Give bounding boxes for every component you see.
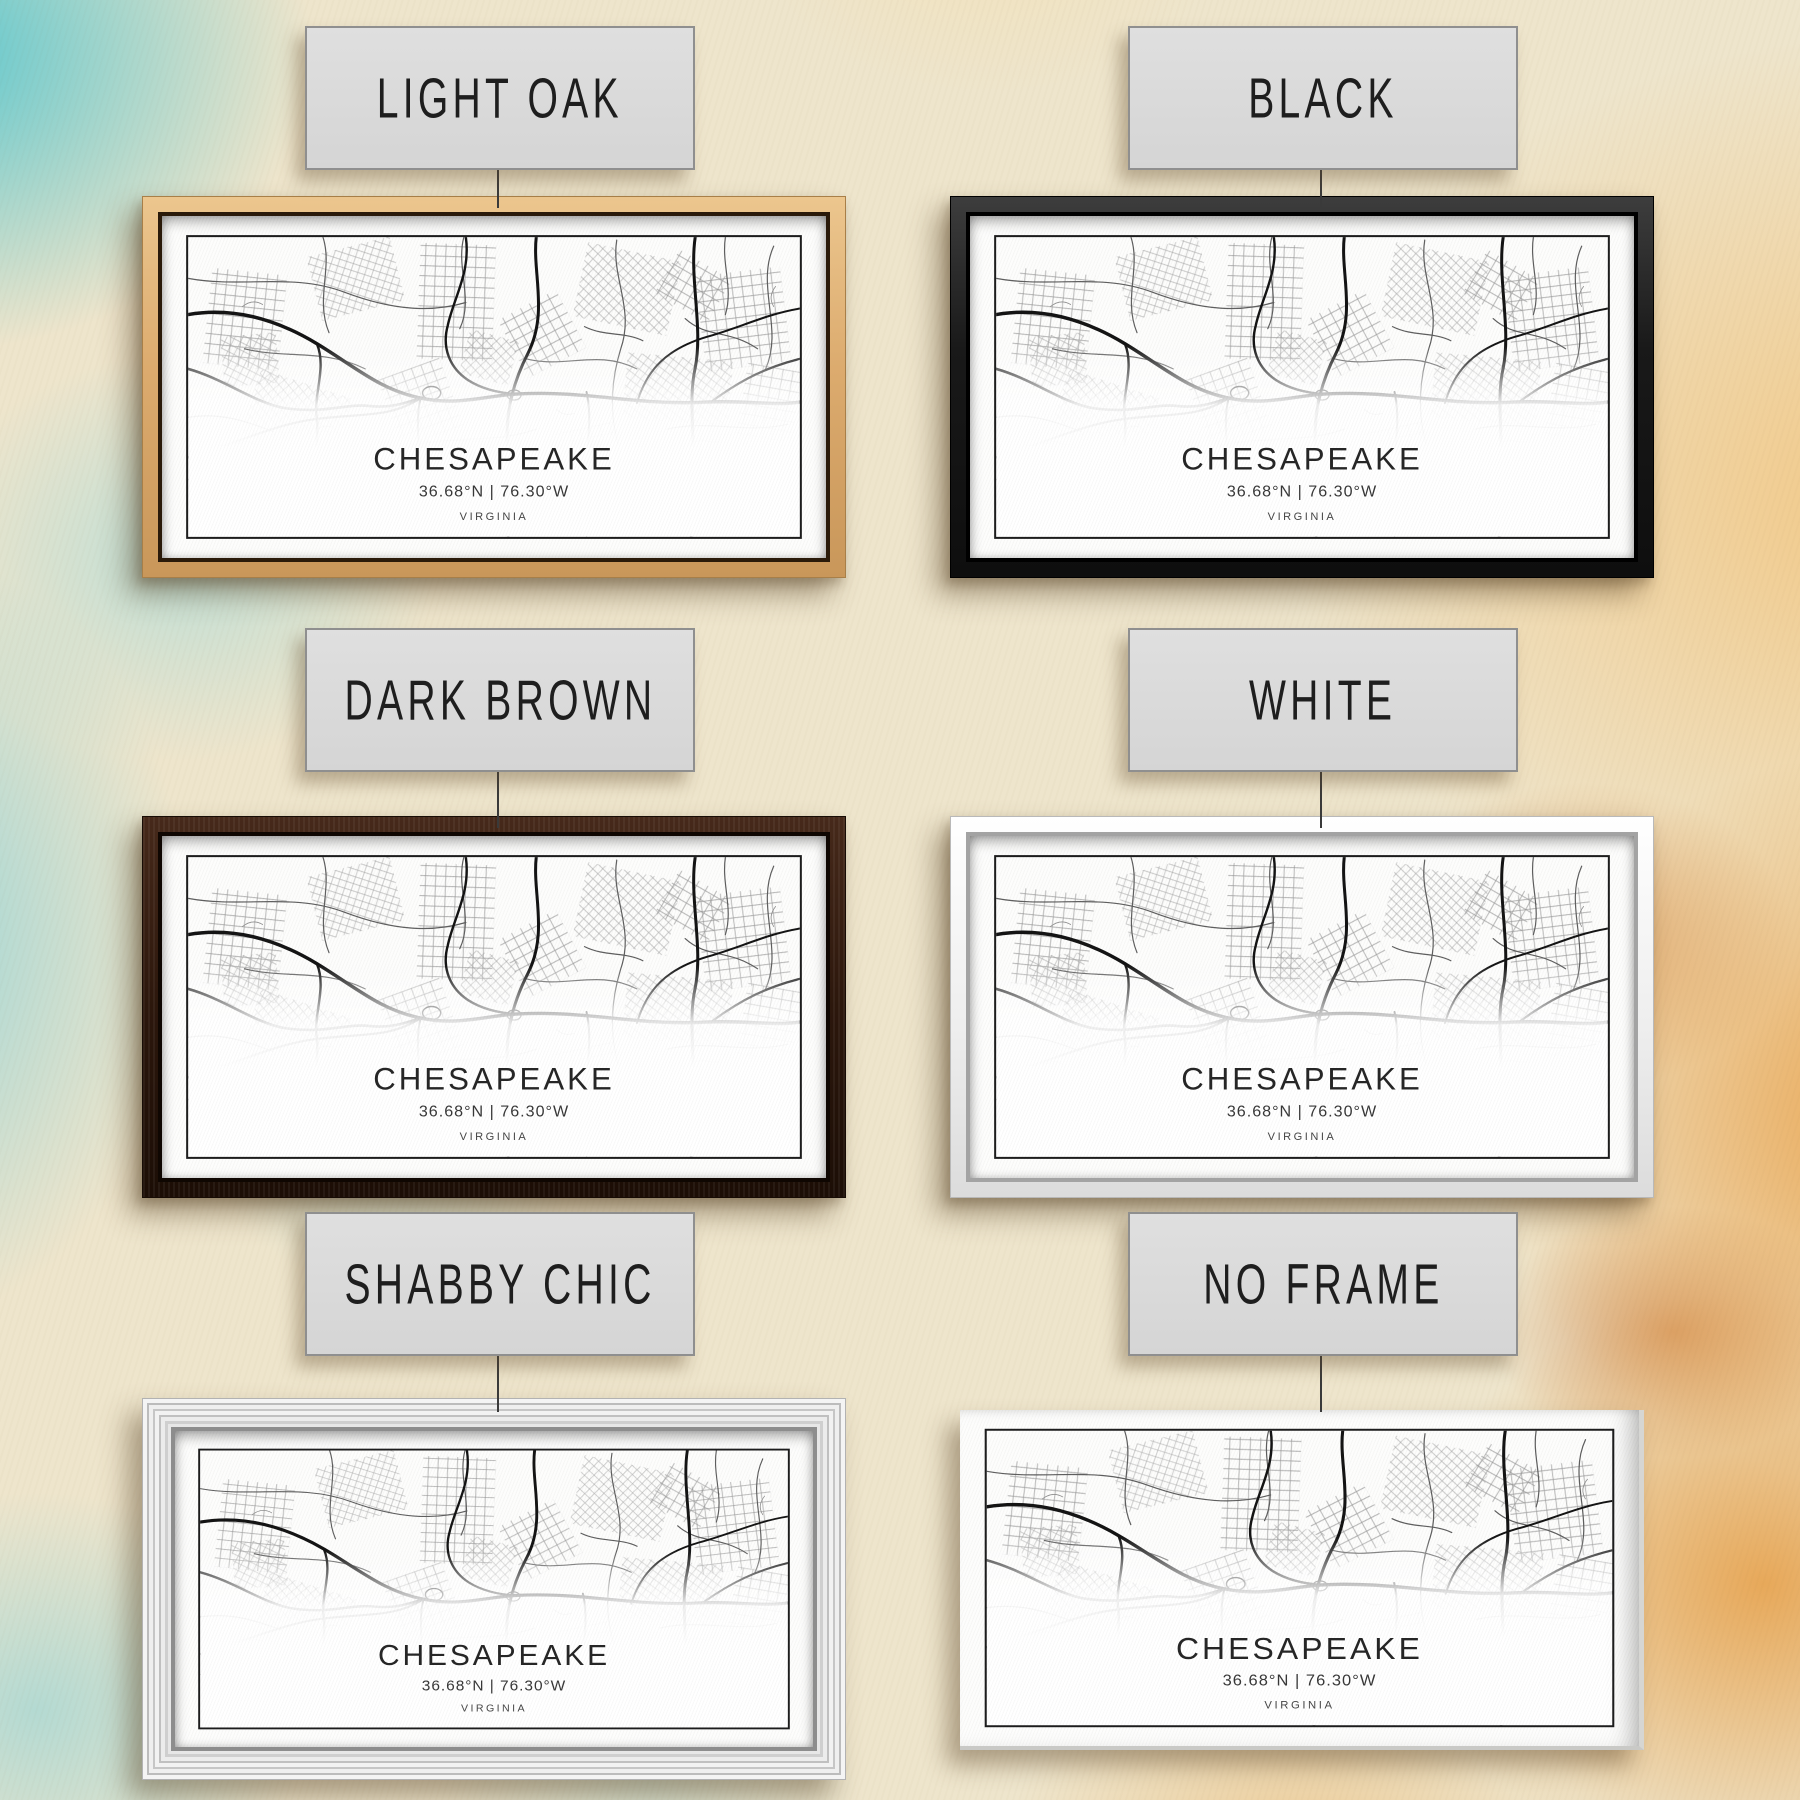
option-label-card: SHABBY CHIC xyxy=(305,1212,695,1356)
option-label-text: NO FRAME xyxy=(1203,1251,1443,1317)
map-print xyxy=(970,216,1634,558)
connector-line xyxy=(497,766,499,828)
option-label-text: BLACK xyxy=(1248,65,1397,131)
framed-print-dark-brown xyxy=(142,816,846,1198)
print-canvas xyxy=(970,216,1634,558)
connector-line xyxy=(1320,766,1322,828)
option-label-text: DARK BROWN xyxy=(344,667,656,733)
option-label-text: WHITE xyxy=(1249,667,1396,733)
map-print xyxy=(175,1431,813,1747)
option-label-card: BLACK xyxy=(1128,26,1518,170)
option-label-card: LIGHT OAK xyxy=(305,26,695,170)
unframed-print xyxy=(960,1410,1644,1750)
option-label-card: DARK BROWN xyxy=(305,628,695,772)
option-label-card: WHITE xyxy=(1128,628,1518,772)
frame-rabbet xyxy=(171,1427,817,1751)
framed-print-white xyxy=(950,816,1654,1198)
frame-rabbet xyxy=(158,832,830,1182)
map-print xyxy=(960,1410,1639,1746)
print-canvas xyxy=(162,836,826,1178)
option-label-text: SHABBY CHIC xyxy=(344,1251,655,1317)
frame-rabbet xyxy=(966,832,1638,1182)
connector-line xyxy=(497,164,499,208)
map-print xyxy=(162,216,826,558)
connector-line xyxy=(1320,1350,1322,1412)
option-label-card: NO FRAME xyxy=(1128,1212,1518,1356)
frame-rabbet xyxy=(966,212,1638,562)
print-canvas xyxy=(162,216,826,558)
frame-rabbet xyxy=(960,1410,1644,1750)
print-canvas xyxy=(175,1431,813,1747)
print-canvas xyxy=(960,1410,1644,1750)
framed-print-shabby-chic xyxy=(142,1398,846,1780)
map-print xyxy=(162,836,826,1178)
frame-rabbet xyxy=(158,212,830,562)
connector-line xyxy=(1320,164,1322,208)
connector-line xyxy=(497,1350,499,1412)
print-canvas xyxy=(970,836,1634,1178)
map-print xyxy=(970,836,1634,1178)
option-label-text: LIGHT OAK xyxy=(377,65,623,131)
wall-background: LIGHT OAK BLACK DARK BROWN xyxy=(0,0,1800,1800)
framed-print-black xyxy=(950,196,1654,578)
framed-print-light-oak xyxy=(142,196,846,578)
